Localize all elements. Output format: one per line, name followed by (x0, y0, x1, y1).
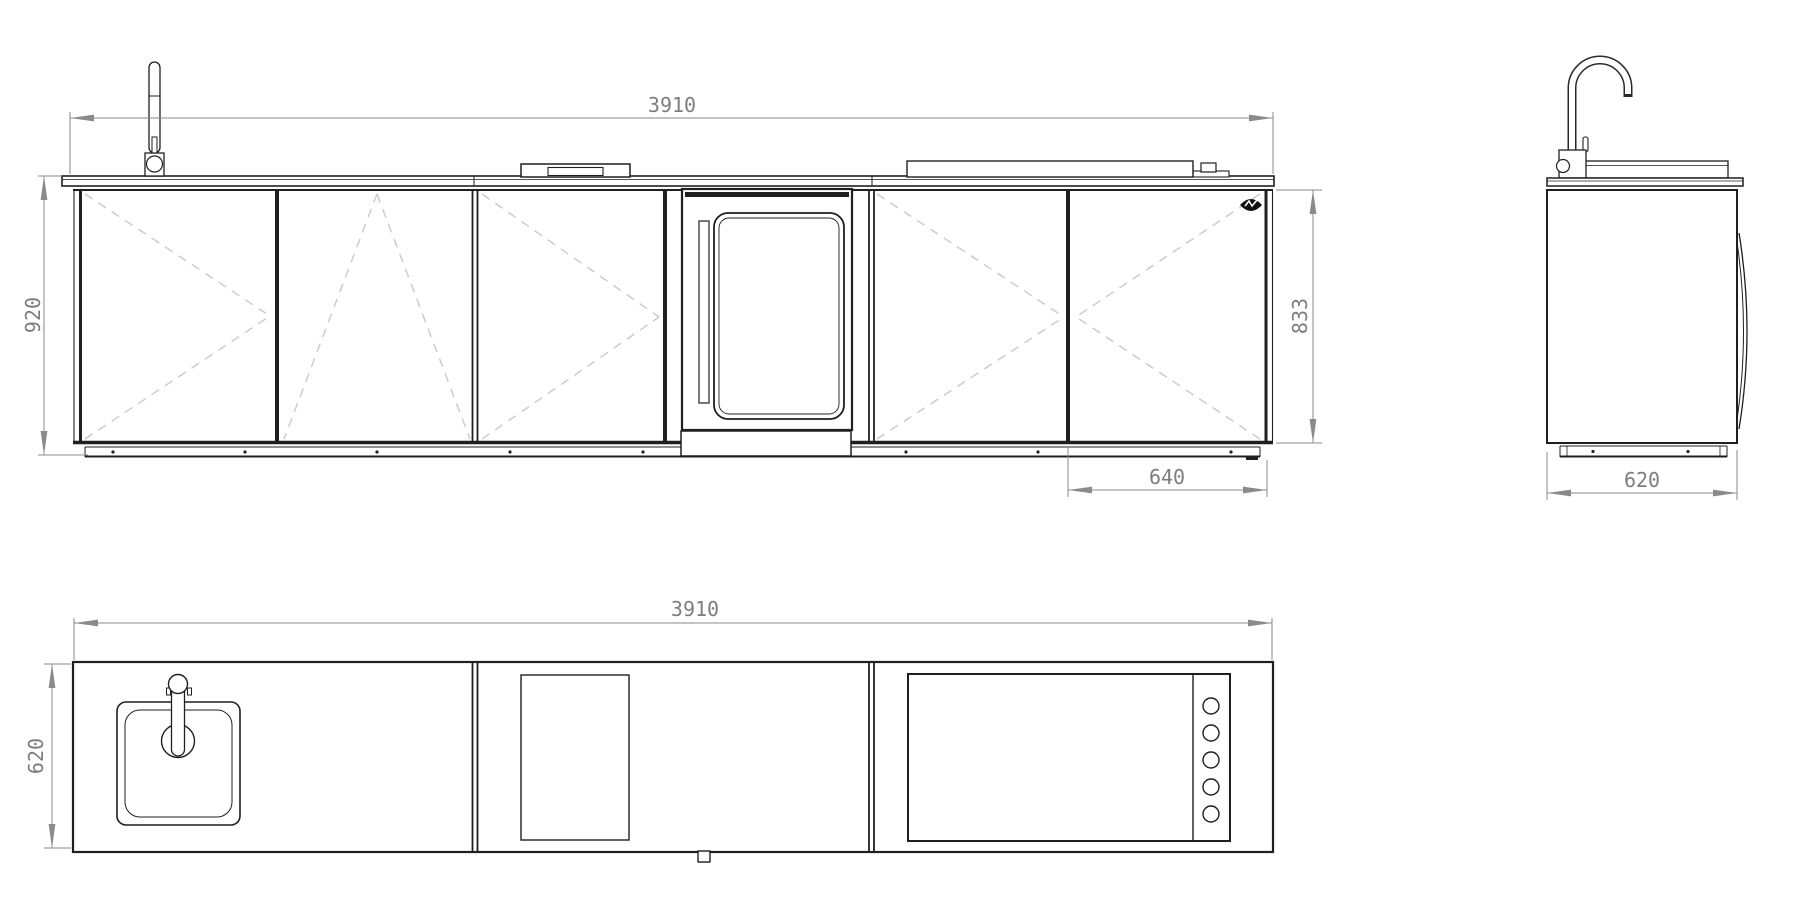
plan-cooktop-icon (521, 675, 629, 840)
door-1-swing (85, 194, 270, 439)
side-cabinet-body (1547, 190, 1737, 443)
dimension-front-right-module: 640 (1068, 448, 1267, 497)
side-elevation-view: 620 (1547, 60, 1747, 500)
plan-faucet-base (169, 675, 188, 694)
door-3-swing (482, 194, 659, 439)
door-2-swing (284, 194, 470, 439)
brand-logo-icon (1240, 199, 1262, 211)
dimension-front-overall-height: 920 (21, 176, 88, 455)
dimension-plan-total-width: 3910 (74, 597, 1272, 660)
dimension-front-cabinet-height: 833 (1276, 190, 1322, 443)
oven-handle (699, 221, 709, 403)
cooktop-icon (521, 164, 630, 177)
plinth (85, 447, 1260, 460)
drawing-canvas: 3910 920 833 640 (0, 0, 1810, 914)
oven-base (681, 431, 851, 456)
door-5-swing (1076, 194, 1260, 439)
side-countertop (1547, 178, 1743, 186)
dim-front-right-module-label: 640 (1149, 465, 1185, 489)
plinth-foot (1246, 456, 1258, 460)
plan-oven-handle-tab (698, 851, 710, 862)
dim-side-depth-label: 620 (1624, 468, 1660, 492)
dim-plan-depth-label: 620 (24, 738, 48, 774)
dim-front-cabinet-height-label: 833 (1288, 298, 1312, 334)
door-swing-marks (85, 194, 1260, 439)
dim-front-total-width-label: 3910 (648, 93, 696, 117)
side-faucet-icon (1557, 60, 1629, 178)
side-door-handle-profile (1737, 233, 1747, 429)
side-plinth (1560, 446, 1727, 457)
drawing-sheet: 3910 920 833 640 (0, 0, 1810, 914)
cabinet-carcass (73, 190, 1273, 443)
front-elevation-view: 3910 920 833 640 (21, 62, 1322, 497)
side-grill-lid (1582, 161, 1728, 178)
plan-grill-icon (908, 674, 1230, 841)
dim-front-overall-height-label: 920 (21, 297, 45, 333)
door-4-swing (877, 194, 1064, 439)
oven-icon (681, 189, 852, 456)
dim-plan-total-width-label: 3910 (671, 597, 719, 621)
plinth-feet-dots (111, 450, 1232, 453)
grill-lid-icon (907, 161, 1229, 177)
plan-view: 3910 620 (24, 597, 1273, 862)
dimension-plan-depth: 620 (24, 664, 71, 848)
faucet-icon (145, 62, 164, 176)
